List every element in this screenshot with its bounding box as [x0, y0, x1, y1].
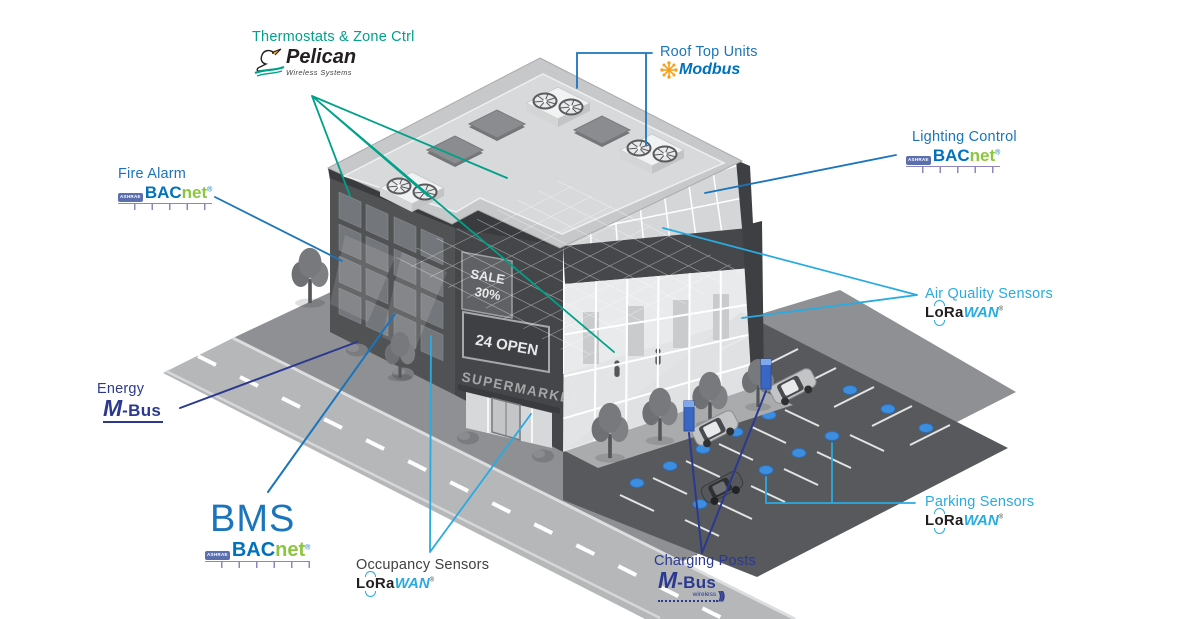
wireless-waves-icon: ))) [718, 590, 723, 602]
ashrae-badge: ASHRAE [205, 551, 230, 560]
pelican-logo: Pelican Wireless Systems [252, 47, 415, 77]
pelican-icon [252, 47, 286, 77]
air-quality-title: Air Quality Sensors [925, 286, 1053, 302]
annotation-occupancy: Occupancy Sensors LoRaWAN® [356, 557, 489, 593]
annotation-lighting: Lighting Control ASHRAEBACnet® [912, 129, 1017, 173]
connector-fire-alarm [215, 197, 342, 261]
rooftop-title: Roof Top Units [660, 44, 758, 60]
annotation-charging: Charging Posts M-Bus wireless ))) [654, 553, 756, 602]
thermostats-title: Thermostats & Zone Ctrl [252, 29, 415, 45]
annotation-energy: Energy M-Bus [97, 381, 163, 423]
bacnet-bus-line [906, 166, 1000, 173]
fire-alarm-title: Fire Alarm [118, 166, 212, 182]
pelican-logo-text: Pelican [286, 47, 356, 67]
annotation-rooftop-units: Roof Top Units Modbus [660, 44, 758, 79]
lorawan-wave-icon [365, 571, 376, 577]
annotation-thermostats: Thermostats & Zone Ctrl Pelican Wireless… [252, 29, 415, 77]
ashrae-badge: ASHRAE [118, 193, 143, 202]
mbus-logo: M-Bus [103, 397, 163, 423]
annotation-parking: Parking Sensors LoRaWAN® [925, 494, 1034, 530]
annotation-bms: BMS ASHRAEBACnet® [210, 500, 310, 568]
bacnet-logo: ASHRAEBACnet® [205, 540, 310, 568]
occupancy-title: Occupancy Sensors [356, 557, 489, 573]
annotation-fire-alarm: Fire Alarm ASHRAEBACnet® [118, 166, 212, 210]
lorawan-wave-icon [934, 508, 945, 514]
modbus-logo-text: Modbus [679, 61, 740, 79]
bacnet-logo: ASHRAEBACnet® [906, 147, 1000, 173]
annotation-air-quality: Air Quality Sensors LoRaWAN® [925, 286, 1053, 322]
ashrae-badge: ASHRAE [906, 156, 931, 165]
mbus-wireless-logo: M-Bus wireless [658, 569, 718, 602]
pelican-logo-subtext: Wireless Systems [286, 68, 356, 77]
charging-post-2 [761, 359, 771, 389]
smart-building-iot-diagram: SALE 30% 24 OPEN SUPERMARKET [0, 0, 1198, 619]
lorawan-wave-icon [934, 300, 945, 306]
lorawan-logo: LoRaWAN® [925, 305, 1003, 321]
bms-title: BMS [210, 500, 310, 538]
lorawan-logo: LoRaWAN® [925, 513, 1003, 529]
lighting-title: Lighting Control [912, 129, 1017, 145]
modbus-star-icon [660, 61, 678, 79]
bacnet-bus-line [118, 203, 212, 210]
bacnet-logo: ASHRAEBACnet® [118, 184, 212, 210]
lorawan-logo: LoRaWAN® [356, 576, 434, 592]
charging-post-1 [684, 401, 694, 431]
modbus-logo: Modbus [660, 61, 758, 79]
bacnet-bus-line [205, 561, 310, 568]
